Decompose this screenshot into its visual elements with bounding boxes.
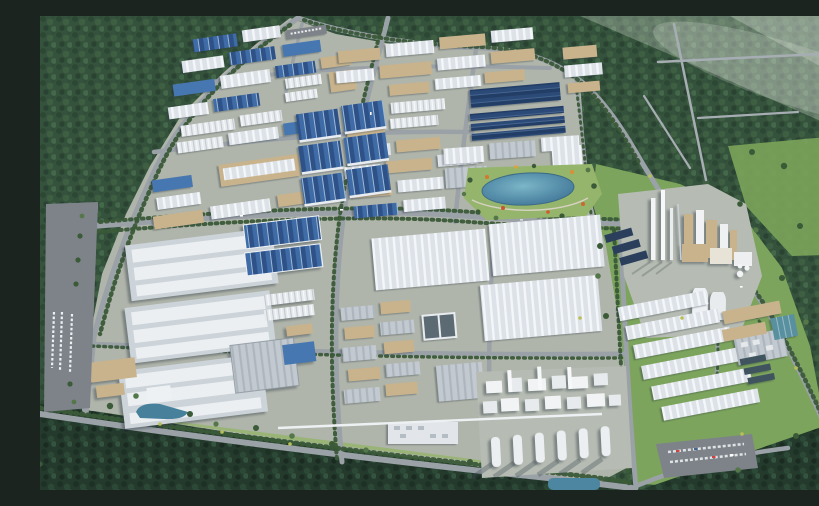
industrial-park-aerial-view: Aerial 3D rendering of a large industria… [40,16,819,490]
flat-roof-building [388,422,458,444]
south-pond [548,478,600,490]
west-parking-strip [44,202,98,412]
scene-canvas: Aerial 3D rendering of a large industria… [40,16,819,490]
smokestack [651,198,656,260]
tank-farm [472,362,632,478]
smokestack-tall [661,190,665,260]
water-treatment-pools [770,314,798,340]
